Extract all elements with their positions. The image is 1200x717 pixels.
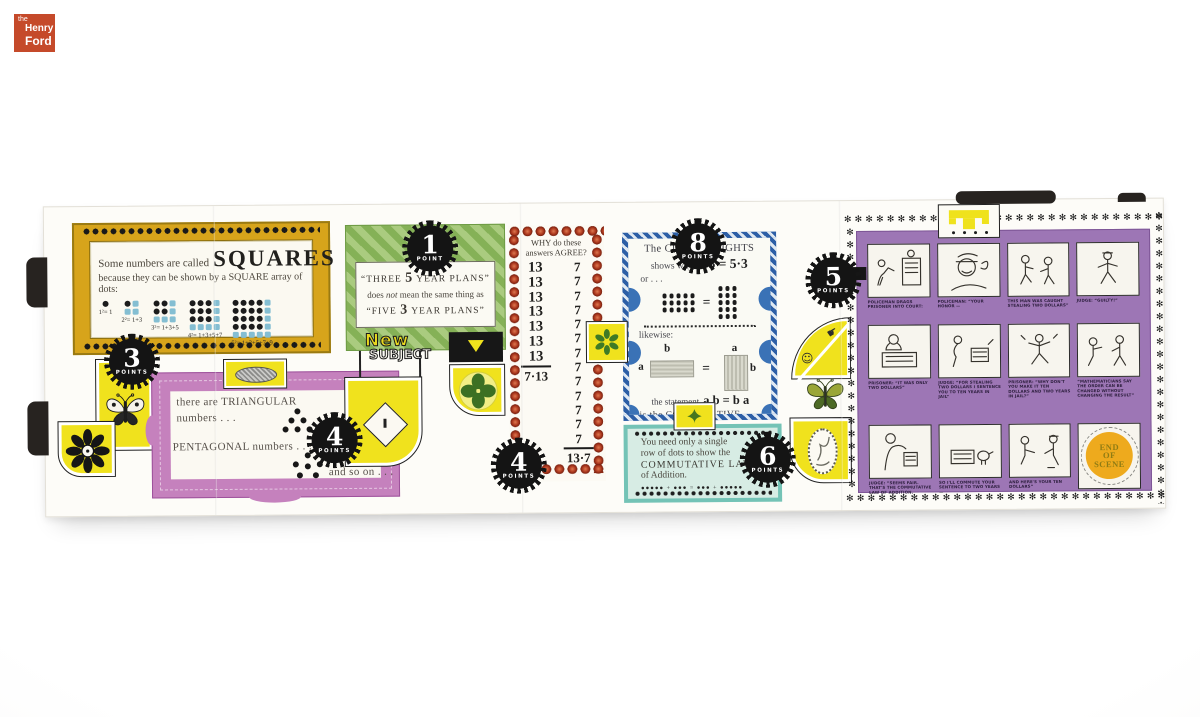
dot [662, 308, 667, 313]
dot [257, 332, 263, 338]
points-badge-5: 5 POINTS [810, 257, 856, 303]
pentagon-dot [305, 463, 311, 469]
addition-panel-text: You need only a single row of dots to sh… [641, 437, 754, 482]
quote2-num: 3 [400, 303, 408, 318]
squares-panel-body: Some numbers are called SQUARES because … [90, 240, 313, 338]
agree-header1: WHY do these [521, 237, 591, 248]
product-7x13: 7·13 [521, 365, 551, 384]
dot [683, 300, 688, 305]
dot [683, 293, 688, 298]
cartoon-drawing [1008, 423, 1071, 477]
top-tab [956, 190, 1056, 204]
label-a: a [732, 341, 738, 353]
label-b: b [664, 342, 670, 354]
logo-ford: Ford [25, 35, 55, 47]
cartoon-caption: THIS MAN WAS CAUGHT STEALING TWO DOLLARS… [1007, 298, 1070, 308]
addend-7: 7 [574, 260, 581, 274]
addend-7: 7 [575, 360, 582, 374]
squares-intro: Some numbers are called [98, 257, 209, 270]
square-diagram-1: 1²= 1 [99, 301, 113, 316]
squares-panel: Some numbers are called SQUARES because … [72, 221, 331, 355]
addend-7: 7 [575, 432, 582, 446]
tulip-leaf-icon [682, 406, 706, 426]
rect-diagrams: b a = a b [638, 341, 762, 390]
dot [206, 316, 212, 322]
squares-title: SQUARES [213, 245, 336, 271]
new-subject-word2: SUBJECT [369, 348, 435, 362]
cartoon-drawing [868, 324, 931, 378]
sevens-column: 7 7 7 7 7 7 7 7 7 7 7 7 7 13·7 [562, 260, 593, 466]
addend-13: 13 [528, 260, 543, 275]
dot [718, 300, 723, 305]
logo-henry: Henry [25, 24, 55, 34]
badge-label: POINTS [503, 474, 536, 480]
path-cell-daisy [57, 421, 115, 477]
addition-dots-equation: ●●●●● + ●●● = ●●● + ●●●●● [641, 485, 743, 492]
square-diagram-3: 3²= 1+3+5 [151, 300, 179, 331]
points-badge-3: 3 POINTS [109, 339, 155, 385]
dot [669, 293, 674, 298]
addend-7: 7 [574, 303, 581, 317]
end-dotted-ring [1080, 426, 1138, 484]
addend-13: 13 [529, 320, 544, 335]
dot [676, 307, 681, 312]
new-subject-label: New SUBJECT [365, 333, 435, 362]
dot [265, 332, 271, 338]
addend-13: 13 [529, 349, 544, 364]
triangle-dot [283, 426, 289, 432]
down-triangle-icon [468, 340, 484, 352]
cube-dot-grids: = [662, 286, 737, 319]
dot-grid [125, 301, 139, 315]
asterisk-border-right: ✻✻✻✻✻✻✻✻✻✻✻✻✻✻✻✻✻✻✻✻✻✻✻✻✻✻ [1152, 212, 1166, 504]
cartoon-caption: PRISONER: “IT WAS ONLY TWO DOLLARS” [868, 380, 931, 390]
square-equation: 4²= 1+3+5+7 [188, 332, 223, 339]
dot [690, 293, 695, 298]
dot [249, 308, 255, 314]
square-equation: 1²= 1 [99, 309, 113, 316]
dot [162, 308, 168, 314]
path-cell-crown [938, 204, 1000, 238]
cartoon-cell: POLICEMAN DRAGS PRISONER INTO COURT: [867, 243, 930, 318]
cartoon-cell: JUDGE: “GUILTY!” [1076, 242, 1139, 317]
addition-line4: of Addition. [641, 470, 754, 482]
dot [726, 314, 731, 319]
label-b: b [750, 361, 756, 373]
silver-leaf-icon [235, 367, 277, 383]
crown-dot [963, 231, 966, 234]
addend-7: 7 [574, 274, 581, 288]
dot [233, 308, 239, 314]
badge-label: POINTS [817, 288, 850, 294]
left-tab-lower [27, 401, 48, 455]
diamond-mark [383, 419, 386, 428]
square-equation: 5²= 1+3+5+7+9 [231, 340, 272, 347]
addend-7: 7 [575, 375, 582, 389]
polygonal-line2: numbers . . . [176, 412, 236, 424]
cartoon-drawing [938, 424, 1001, 478]
top-tab-small [1118, 193, 1146, 202]
quote2-pre: “FIVE [366, 307, 396, 317]
badge-number: 4 [326, 426, 344, 447]
dot [233, 300, 239, 306]
dot-grid [102, 301, 108, 307]
pentagon-dot [313, 472, 319, 478]
dot [198, 324, 204, 330]
square-diagram-5: 5²= 1+3+5+7+9 [231, 300, 273, 347]
pentagon-dot [297, 472, 303, 478]
mid-c: mean the same thing as [400, 289, 484, 300]
path-cell-fill [453, 368, 501, 412]
cartoon-drawing [937, 324, 1000, 378]
dot [154, 308, 160, 314]
points-badge-1: 1 POINT [407, 225, 453, 271]
triangle-dot [294, 408, 300, 414]
path-cell-fill [62, 425, 112, 473]
logo-the: the [18, 16, 55, 23]
dot [154, 300, 160, 306]
square-diagram-2: 2²= 1+3 [121, 301, 142, 324]
product-13x7: 13·7 [564, 447, 594, 466]
addend-7: 7 [575, 403, 582, 417]
squares-title-row: Some numbers are called SQUARES [98, 245, 304, 273]
dot [249, 300, 255, 306]
addend-7: 7 [574, 317, 581, 331]
dot [257, 308, 263, 314]
path-cell-flower [586, 321, 628, 363]
badge-number: 6 [759, 446, 777, 467]
addend-7: 7 [574, 289, 581, 303]
dot [241, 316, 247, 322]
pointing-hand-icon: ☛ [824, 323, 840, 341]
dot [206, 324, 212, 330]
crown-dot [985, 231, 988, 234]
cartoon-cell: POLICEMAN: “YOUR HONOR — [937, 243, 1000, 318]
badge-label: POINTS [682, 254, 715, 260]
cartoon-drawing [937, 243, 1000, 297]
plans-quote2: “FIVE 3 YEAR PLANS” [366, 302, 484, 319]
left-tab-upper [26, 257, 47, 307]
dot [265, 308, 271, 314]
addend-7: 7 [575, 389, 582, 403]
photo-stage: the Henry Ford Some numbers are called S… [0, 0, 1200, 717]
cartoon-caption: POLICEMAN: “YOUR HONOR — [937, 299, 1000, 309]
dot [669, 307, 674, 312]
quote1-num: 5 [405, 271, 413, 286]
plans-middle: does not mean the same thing as [367, 289, 484, 300]
dot-grid [233, 300, 271, 338]
game-board: Some numbers are called SQUARES because … [43, 198, 1166, 518]
dot [154, 316, 160, 322]
dot [718, 286, 723, 291]
path-cell-leaf [223, 358, 287, 389]
cartoon-cell: PRISONER: “IT WAS ONLY TWO DOLLARS” [868, 324, 931, 418]
dot [733, 314, 738, 319]
cartoon-cell: “MATHEMATICIANS SAY THE ORDER CAN BE CHA… [1077, 323, 1140, 417]
addend-7: 7 [575, 417, 582, 431]
badge-label: POINT [417, 256, 444, 262]
badge-number: 3 [123, 348, 141, 369]
dot [690, 300, 695, 305]
dot [732, 293, 737, 298]
cartoon-caption: “MATHEMATICIANS SAY THE ORDER CAN BE CHA… [1077, 379, 1140, 398]
cartoon-cell: PRISONER: “WHY DON'T YOU MAKE IT TEN DOL… [1007, 323, 1070, 417]
badge-label: POINTS [752, 468, 785, 474]
clover-icon [458, 371, 498, 411]
path-cell-fill [676, 405, 712, 427]
cartoon-cell: JUDGE: “FOR STEALING TWO DOLLARS I SENTE… [937, 324, 1000, 418]
dot-grid-3x5 [718, 286, 737, 319]
henry-ford-logo: the Henry Ford [14, 14, 55, 52]
dot [206, 300, 212, 306]
dot [257, 324, 263, 330]
dot [170, 316, 176, 322]
pentagon-dot [293, 461, 299, 467]
dot [241, 324, 247, 330]
dot [190, 308, 196, 314]
badge-number: 4 [510, 452, 528, 473]
dot [190, 324, 196, 330]
cartoon-panel: POLICEMAN DRAGS PRISONER INTO COURT: POL… [856, 229, 1152, 493]
points-badge-4-agree: 4 POINTS [496, 442, 542, 488]
cube-likewise: likewise: [639, 330, 673, 340]
dot [725, 307, 730, 312]
dot [676, 300, 681, 305]
dot [257, 316, 263, 322]
crown-dot [952, 231, 955, 234]
oval-frame-icon [808, 428, 838, 474]
label-a: a [638, 360, 644, 372]
cartoon-cell: THIS MAN WAS CAUGHT STEALING TWO DOLLARS… [1007, 242, 1070, 317]
dot-grid-5x3 [662, 293, 695, 312]
black-arrow-box [449, 332, 503, 362]
dot-border-top [82, 226, 320, 235]
quote2-post: YEAR PLANS” [411, 306, 485, 317]
dot [162, 316, 168, 322]
dot [241, 300, 247, 306]
addition-line2: row of dots to show the [641, 448, 754, 460]
comic-face-icon: ☺ [801, 351, 814, 365]
dot [241, 332, 247, 338]
crown-nub [982, 218, 989, 224]
addition-line3: COMMUTATIVE LAW [641, 459, 754, 471]
dot [265, 300, 271, 306]
points-badge-6: 6 POINTS [745, 437, 791, 483]
asterisk-border-bottom: ✻✻✻✻✻✻✻✻✻✻✻✻✻✻✻✻✻✻✻✻✻✻✻✻✻✻✻✻✻✻✻✻ [846, 491, 1168, 507]
cartoon-drawing [1007, 242, 1070, 296]
addend-7: 7 [575, 346, 582, 360]
dot [102, 301, 108, 307]
addend-13: 13 [528, 305, 543, 320]
cartoon-caption: AND HERE'S YOUR TEN DOLLARS” [1008, 479, 1071, 489]
cartoon-grid: POLICEMAN DRAGS PRISONER INTO COURT: POL… [867, 242, 1141, 484]
addend-7: 7 [574, 332, 581, 346]
agree-columns: 13 13 13 13 13 13 13 7·13 7 7 7 7 [521, 260, 593, 466]
cartoon-drawing [867, 243, 930, 297]
square-equation: 2²= 1+3 [121, 317, 142, 324]
triangle-dot [288, 417, 294, 423]
rect-ab-horizontal [650, 360, 694, 377]
dot-grid [154, 300, 176, 322]
path-cell-clover [449, 364, 505, 416]
dot [125, 301, 131, 307]
dot [662, 294, 667, 299]
polygonal-line3: PENTAGONAL numbers . . . [173, 440, 312, 453]
path-cell-tulip [673, 402, 715, 430]
dot [265, 324, 271, 330]
green-flower-icon [594, 329, 620, 355]
dot [198, 300, 204, 306]
dot [233, 332, 239, 338]
asterisk-border-top: ✻✻✻✻✻✻✻✻✻✻✻✻✻✻✻✻✻✻✻✻✻✻✻✻✻✻✻✻✻✻✻✻ [844, 212, 1166, 228]
addend-13: 13 [528, 275, 543, 290]
dot [133, 309, 139, 315]
dot [662, 301, 667, 306]
agree-header2: answers AGREE? [521, 247, 591, 258]
dotted-divider [644, 324, 756, 327]
dot [719, 314, 724, 319]
dot [249, 316, 255, 322]
dot [683, 307, 688, 312]
mid-b: not [386, 290, 398, 300]
cartoon-caption: POLICEMAN DRAGS PRISONER INTO COURT: [868, 299, 931, 309]
thirteens-column: 13 13 13 13 13 13 13 7·13 [520, 260, 551, 466]
dot [206, 308, 212, 314]
cartoon-drawing [1077, 323, 1140, 377]
rect-diagram-left: b a [638, 342, 696, 388]
dot [133, 301, 139, 307]
daisy-flower-icon [66, 429, 110, 473]
dot [241, 308, 247, 314]
points-badge-8: 8 POINTS [675, 223, 721, 269]
rect-ba-vertical [724, 354, 748, 390]
dot [725, 286, 730, 291]
crown-stem [963, 218, 975, 229]
oval-sketch [810, 430, 836, 472]
addend-13: 13 [529, 334, 544, 349]
dot [170, 300, 176, 306]
dot [198, 316, 204, 322]
quote1-pre: “THREE [361, 275, 402, 285]
addition-line1: You need only a single [641, 437, 754, 449]
dot [257, 300, 263, 306]
equals-sign: = [702, 360, 710, 376]
cube-line3: or . . . [640, 275, 662, 285]
dot [233, 324, 239, 330]
dot [233, 316, 239, 322]
dot [732, 300, 737, 305]
dot [676, 293, 681, 298]
dot [190, 316, 196, 322]
dot [718, 293, 723, 298]
path-cell-fill [226, 362, 284, 386]
square-diagram-4: 4²= 1+3+5+7 [188, 300, 223, 339]
dot [125, 309, 131, 315]
squares-subtitle: because they can be shown by a SQUARE ar… [98, 271, 304, 295]
points-badge-4-polygonal: 4 POINTS [311, 417, 357, 463]
cartoon-drawing [1076, 242, 1139, 296]
badge-label: POINTS [318, 448, 351, 454]
badge-number: 1 [421, 234, 439, 255]
dot [725, 293, 730, 298]
dot [198, 308, 204, 314]
dot [190, 300, 196, 306]
dot [249, 324, 255, 330]
dot [170, 308, 176, 314]
crown-dot [974, 231, 977, 234]
equals-sign: = [703, 294, 711, 310]
crown-icon [941, 207, 997, 235]
dot [718, 307, 723, 312]
dot [690, 307, 695, 312]
dot [162, 300, 168, 306]
triangle-dot [295, 426, 301, 432]
dot [265, 316, 271, 322]
badge-number: 5 [825, 266, 843, 287]
dot [732, 307, 737, 312]
dot [669, 300, 674, 305]
dot [725, 300, 730, 305]
dot [249, 332, 255, 338]
rect-diagram-right: a b [716, 341, 762, 389]
agree-panel-body: WHY do these answers AGREE? 13 13 13 13 … [521, 237, 593, 466]
end-of-scene-box: END OF SCENE [1078, 422, 1141, 488]
dot [732, 286, 737, 291]
cartoon-caption: PRISONER: “WHY DON'T YOU MAKE IT TEN DOL… [1008, 379, 1071, 398]
mid-a: does [367, 290, 384, 300]
cartoon-caption: JUDGE: “FOR STEALING TWO DOLLARS I SENTE… [938, 380, 1001, 399]
cartoon-drawing [1007, 323, 1070, 377]
triangle-dot [300, 417, 306, 423]
badge-label: POINTS [116, 370, 149, 376]
square-equation: 3²= 1+3+5 [151, 324, 179, 331]
addend-13: 13 [528, 290, 543, 305]
crown-nub [949, 218, 956, 224]
cartoon-drawing [869, 424, 932, 478]
badge-number: 8 [689, 232, 707, 253]
polygonal-line1: there are TRIANGULAR [176, 395, 296, 408]
cartoon-caption: JUDGE: “GUILTY!” [1077, 298, 1140, 303]
path-cell-fill [589, 324, 625, 360]
